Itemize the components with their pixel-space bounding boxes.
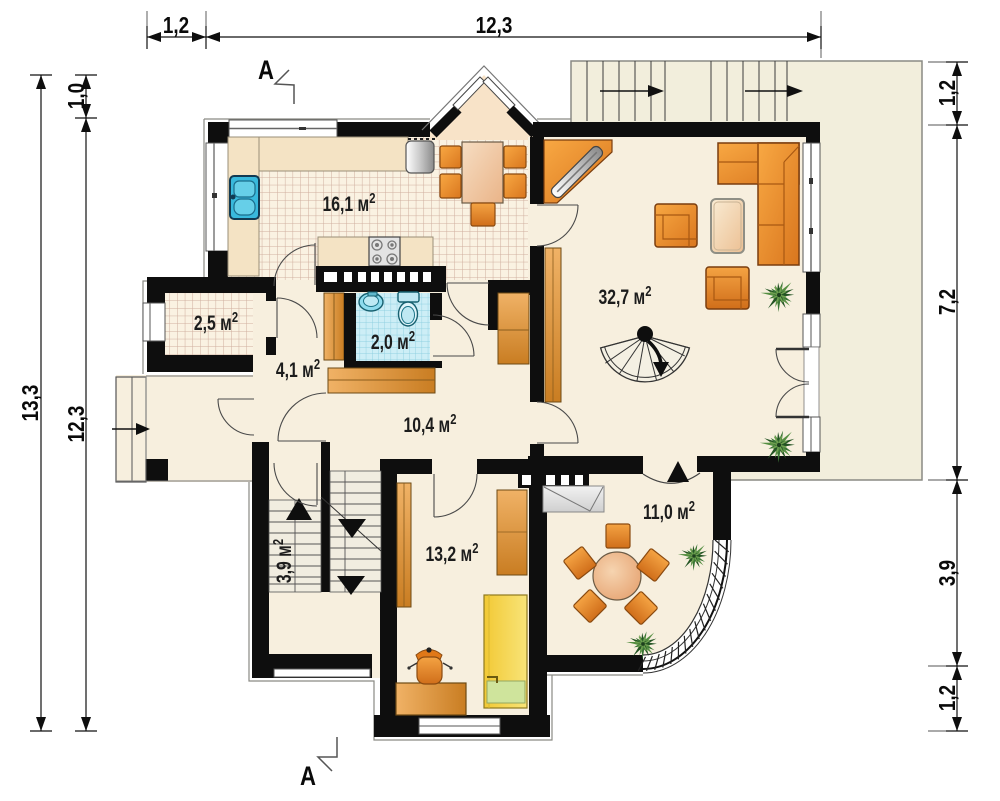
svg-text:2,0 м2: 2,0 м2	[371, 327, 415, 353]
svg-text:A: A	[300, 762, 316, 792]
svg-text:2,5 м2: 2,5 м2	[194, 308, 238, 334]
svg-text:7,2: 7,2	[935, 289, 960, 315]
svg-text:13,3: 13,3	[18, 385, 43, 422]
svg-text:10,4 м2: 10,4 м2	[404, 410, 457, 436]
svg-text:1,2: 1,2	[935, 80, 960, 106]
svg-text:3,9 м2: 3,9 м2	[269, 539, 295, 583]
svg-text:12,3: 12,3	[64, 406, 89, 443]
svg-text:1,2: 1,2	[935, 685, 960, 711]
svg-text:13,2 м2: 13,2 м2	[426, 539, 479, 565]
svg-text:4,1 м2: 4,1 м2	[276, 355, 320, 381]
svg-text:1,0: 1,0	[64, 83, 89, 109]
svg-text:11,0 м2: 11,0 м2	[643, 497, 695, 523]
svg-text:3,9: 3,9	[935, 560, 960, 586]
svg-text:12,3: 12,3	[476, 13, 513, 38]
svg-text:32,7 м2: 32,7 м2	[599, 282, 652, 308]
svg-text:1,2: 1,2	[163, 13, 189, 38]
svg-text:A: A	[258, 56, 274, 86]
svg-text:16,1 м2: 16,1 м2	[323, 189, 376, 215]
